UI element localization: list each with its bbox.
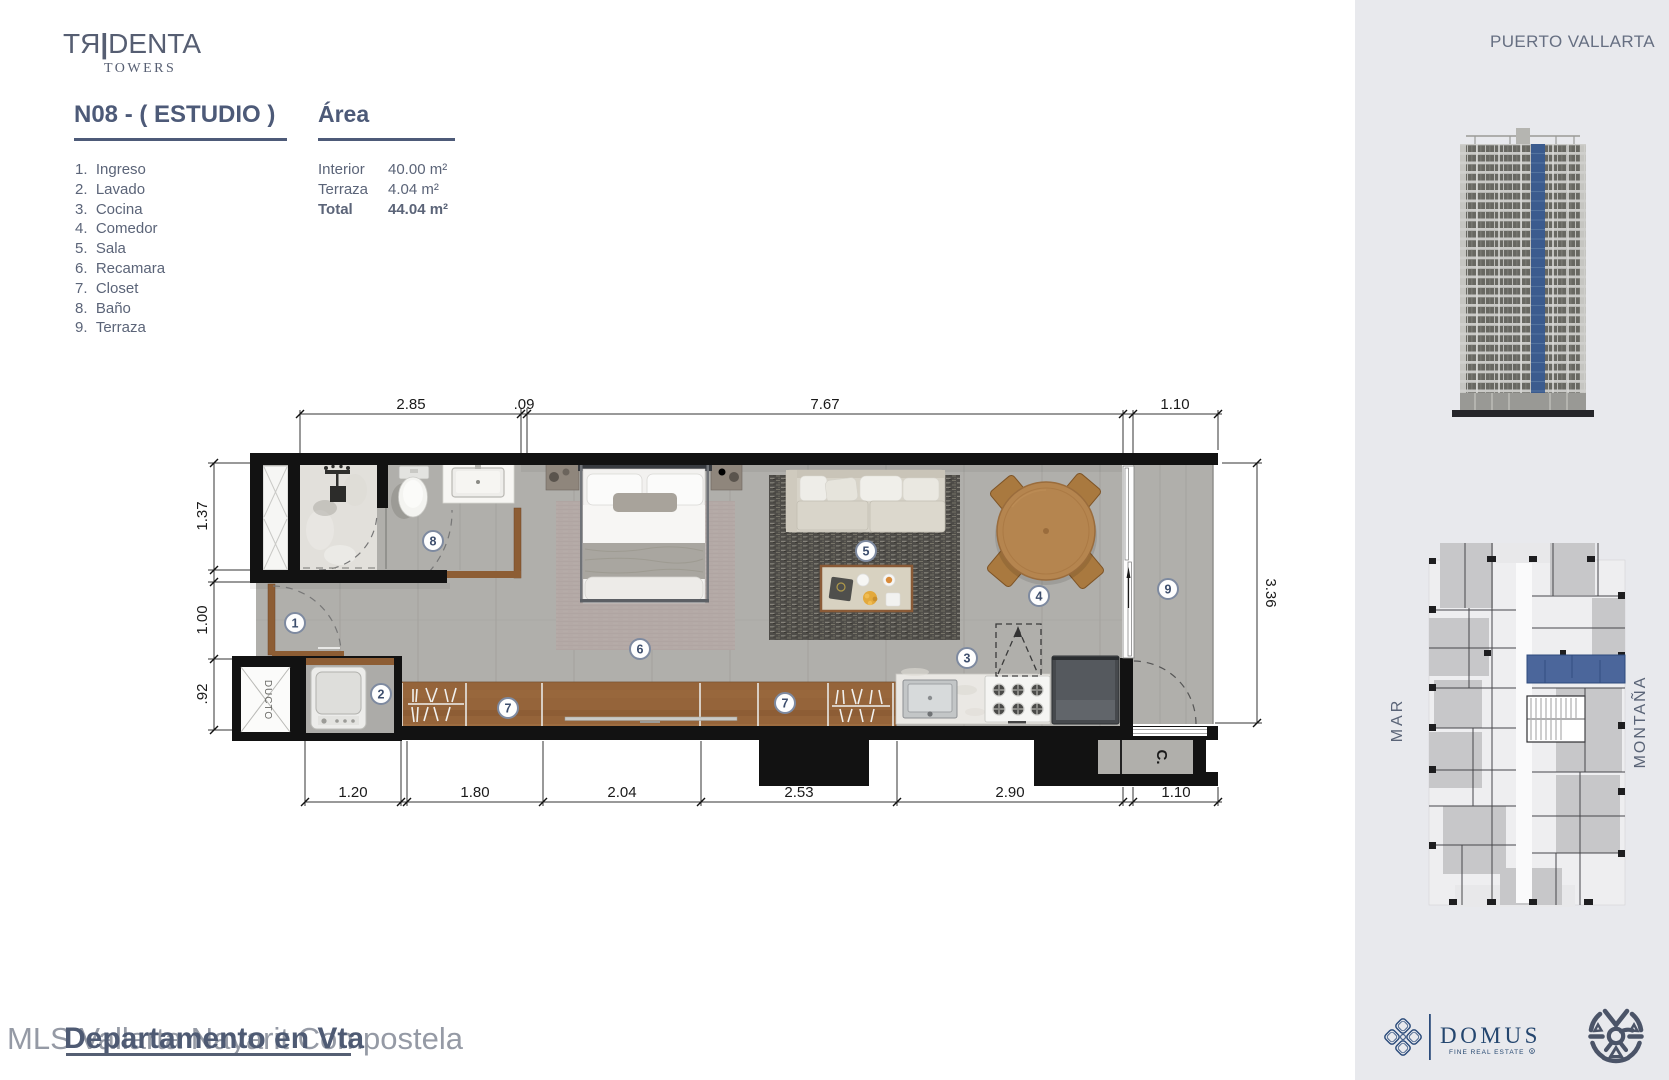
svg-text:6: 6	[637, 643, 644, 657]
svg-text:7: 7	[782, 697, 789, 711]
svg-text:5: 5	[863, 545, 870, 559]
svg-text:8: 8	[430, 535, 437, 549]
svg-text:1.10: 1.10	[1161, 784, 1190, 801]
svg-text:7.67: 7.67	[810, 396, 839, 413]
svg-text:2.90: 2.90	[995, 784, 1024, 801]
svg-text:3.36: 3.36	[1262, 578, 1279, 607]
svg-text:2: 2	[378, 688, 385, 702]
svg-text:2.53: 2.53	[784, 784, 813, 801]
svg-text:3: 3	[964, 652, 971, 666]
svg-text:7: 7	[505, 702, 512, 716]
svg-text:.92: .92	[194, 684, 211, 705]
svg-text:FINE REAL ESTATE: FINE REAL ESTATE	[1449, 1049, 1524, 1056]
svg-text:4: 4	[1036, 590, 1043, 604]
svg-text:2.04: 2.04	[607, 784, 636, 801]
svg-text:1.00: 1.00	[194, 605, 211, 634]
svg-text:MAR: MAR	[1389, 698, 1406, 743]
svg-text:1.20: 1.20	[338, 784, 367, 801]
svg-text:2.85: 2.85	[396, 396, 425, 413]
svg-text:1.10: 1.10	[1160, 396, 1189, 413]
svg-text:.09: .09	[514, 396, 535, 413]
svg-text:R: R	[1531, 1050, 1534, 1054]
svg-text:MONTAÑA: MONTAÑA	[1629, 676, 1649, 769]
svg-text:9: 9	[1165, 583, 1172, 597]
svg-text:1.37: 1.37	[194, 501, 211, 530]
svg-text:DOMUS: DOMUS	[1440, 1023, 1541, 1048]
svg-text:1.80: 1.80	[460, 784, 489, 801]
svg-text:1: 1	[292, 617, 299, 631]
svg-text:C.: C.	[1153, 750, 1170, 765]
svg-text:DUCTO: DUCTO	[262, 680, 273, 720]
